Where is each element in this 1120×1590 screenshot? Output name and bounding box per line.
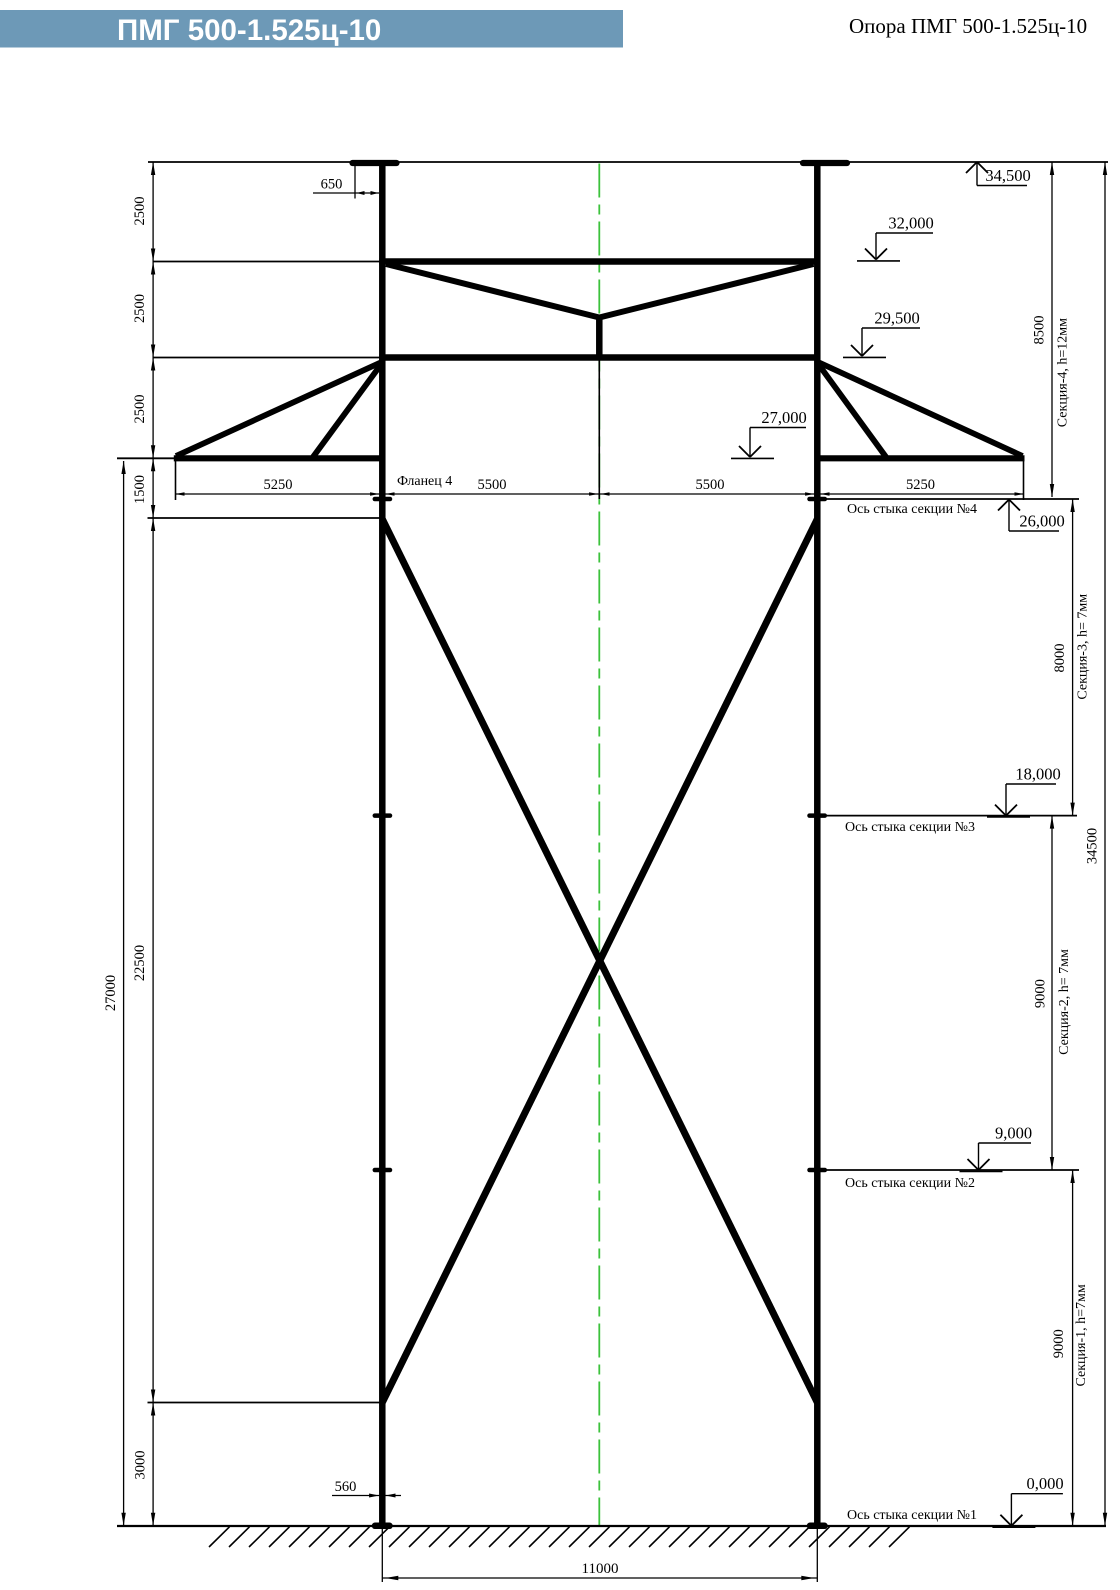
svg-text:8500: 8500	[1032, 316, 1048, 345]
svg-text:Ось стыка секции №1: Ось стыка секции №1	[847, 1508, 977, 1523]
svg-text:0,000: 0,000	[1026, 1474, 1063, 1493]
svg-text:32,000: 32,000	[888, 214, 933, 233]
svg-text:Ось стыка секции №4: Ось стыка секции №4	[847, 502, 977, 517]
svg-text:8000: 8000	[1052, 644, 1068, 673]
svg-text:34,500: 34,500	[985, 166, 1030, 185]
svg-text:560: 560	[335, 1479, 357, 1495]
svg-text:26,000: 26,000	[1019, 512, 1064, 531]
svg-text:5250: 5250	[264, 477, 293, 493]
svg-text:Фланец 4: Фланец 4	[397, 474, 452, 489]
svg-text:ПМГ 500-1.525ц-10: ПМГ 500-1.525ц-10	[117, 14, 381, 47]
svg-text:Секция-4, h=12мм: Секция-4, h=12мм	[1056, 318, 1071, 427]
svg-text:Секция-1, h=7мм: Секция-1, h=7мм	[1074, 1284, 1089, 1386]
svg-text:5500: 5500	[478, 477, 507, 493]
svg-text:2500: 2500	[132, 395, 148, 424]
svg-text:18,000: 18,000	[1015, 765, 1060, 784]
svg-text:9,000: 9,000	[995, 1124, 1032, 1143]
svg-text:5250: 5250	[906, 477, 935, 493]
svg-text:9000: 9000	[1033, 979, 1049, 1008]
svg-text:Опора ПМГ 500-1.525ц-10: Опора ПМГ 500-1.525ц-10	[849, 14, 1087, 38]
svg-text:22500: 22500	[132, 945, 148, 981]
svg-text:Ось стыка секции №2: Ось стыка секции №2	[845, 1176, 975, 1191]
svg-text:Секция-2, h= 7мм: Секция-2, h= 7мм	[1057, 949, 1072, 1055]
svg-text:34500: 34500	[1085, 828, 1101, 864]
svg-text:11000: 11000	[582, 1561, 619, 1577]
svg-text:650: 650	[321, 177, 343, 193]
svg-text:Ось стыка секции №3: Ось стыка секции №3	[845, 820, 975, 835]
svg-text:3000: 3000	[133, 1451, 149, 1480]
svg-text:Секция-3, h= 7мм: Секция-3, h= 7мм	[1076, 594, 1091, 700]
svg-text:5500: 5500	[696, 477, 725, 493]
svg-text:1500: 1500	[132, 475, 148, 504]
svg-text:2500: 2500	[132, 294, 148, 323]
svg-text:29,500: 29,500	[874, 309, 919, 328]
svg-text:27000: 27000	[103, 975, 119, 1011]
svg-text:27,000: 27,000	[761, 408, 806, 427]
svg-text:9000: 9000	[1051, 1329, 1067, 1358]
svg-text:2500: 2500	[132, 197, 148, 226]
